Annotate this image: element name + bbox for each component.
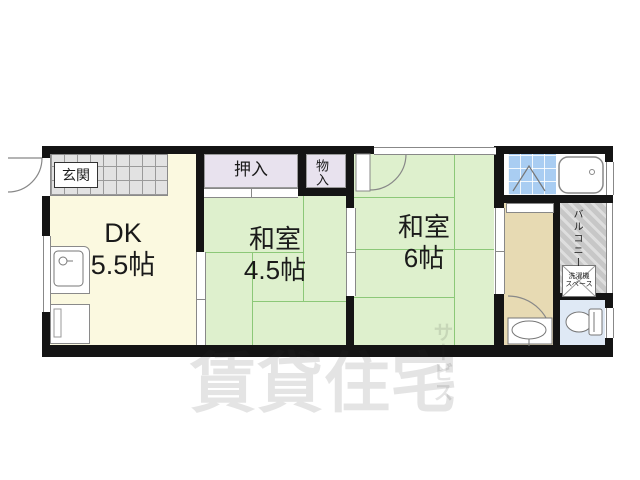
tatami-line <box>252 301 346 302</box>
tatami-line <box>354 297 454 298</box>
entrance-door-arc <box>8 158 42 192</box>
sliding-door-washitsu6-corridor <box>495 208 505 294</box>
wall-dk-divider <box>196 146 204 252</box>
wall-top-right <box>496 146 613 154</box>
wall-oshiire-monoire <box>298 146 306 196</box>
wall-bottom <box>42 345 613 357</box>
washitsu45-name: 和室 <box>204 224 346 255</box>
corridor <box>504 203 553 345</box>
bathroom-tile-area <box>508 154 556 195</box>
balcony-railing <box>606 203 613 293</box>
wall-45-6-top <box>346 196 354 208</box>
wall-top-left <box>42 146 374 154</box>
wall-right-3 <box>605 338 613 357</box>
washitsu6-size: 6帖 <box>354 243 494 274</box>
dk-size: 5.5帖 <box>50 250 196 282</box>
wall-6-corridor-bottom <box>494 294 504 345</box>
laundry-label-line2: スペース <box>565 281 592 289</box>
washitsu6-name: 和室 <box>354 212 494 243</box>
washitsu45-label: 和室 4.5帖 <box>204 224 346 285</box>
wall-bath-bottom <box>494 195 613 203</box>
dk-name: DK <box>50 218 196 250</box>
sliding-door-oshiire <box>204 188 298 198</box>
wall-45-6-bottom <box>346 296 354 345</box>
washitsu6-label: 和室 6帖 <box>354 212 494 273</box>
genkan-label-box: 玄関 <box>54 162 98 188</box>
bathroom-door <box>506 203 554 213</box>
laundry-label-line1: 洗濯機 <box>569 273 590 281</box>
window-top <box>374 147 496 155</box>
wall-left-1 <box>42 146 50 158</box>
wall-monoire-bottom <box>306 188 354 196</box>
window-bath-right <box>606 162 614 195</box>
kitchen-counter <box>50 304 90 344</box>
wall-corridor-balcony <box>553 203 560 345</box>
floor-plan: 洗濯機 スペース 玄関 DK 5.5帖 押入 物入 和室 4.5帖 <box>0 0 640 480</box>
bathtub-area <box>556 154 605 195</box>
monoire-label: 物入 <box>315 157 328 189</box>
window-toilet-right <box>606 308 614 338</box>
genkan-label: 玄関 <box>62 165 90 185</box>
dk-label: DK 5.5帖 <box>50 218 196 282</box>
wall-left-3 <box>42 312 50 357</box>
toilet-room <box>560 300 605 345</box>
tatami-line <box>354 197 454 198</box>
wall-right-1 <box>605 146 613 162</box>
washitsu45-size: 4.5帖 <box>204 255 346 286</box>
oshiire-label: 押入 <box>204 160 298 180</box>
wall-left-2 <box>42 196 50 236</box>
balcony-label: バルコニー <box>571 206 581 272</box>
